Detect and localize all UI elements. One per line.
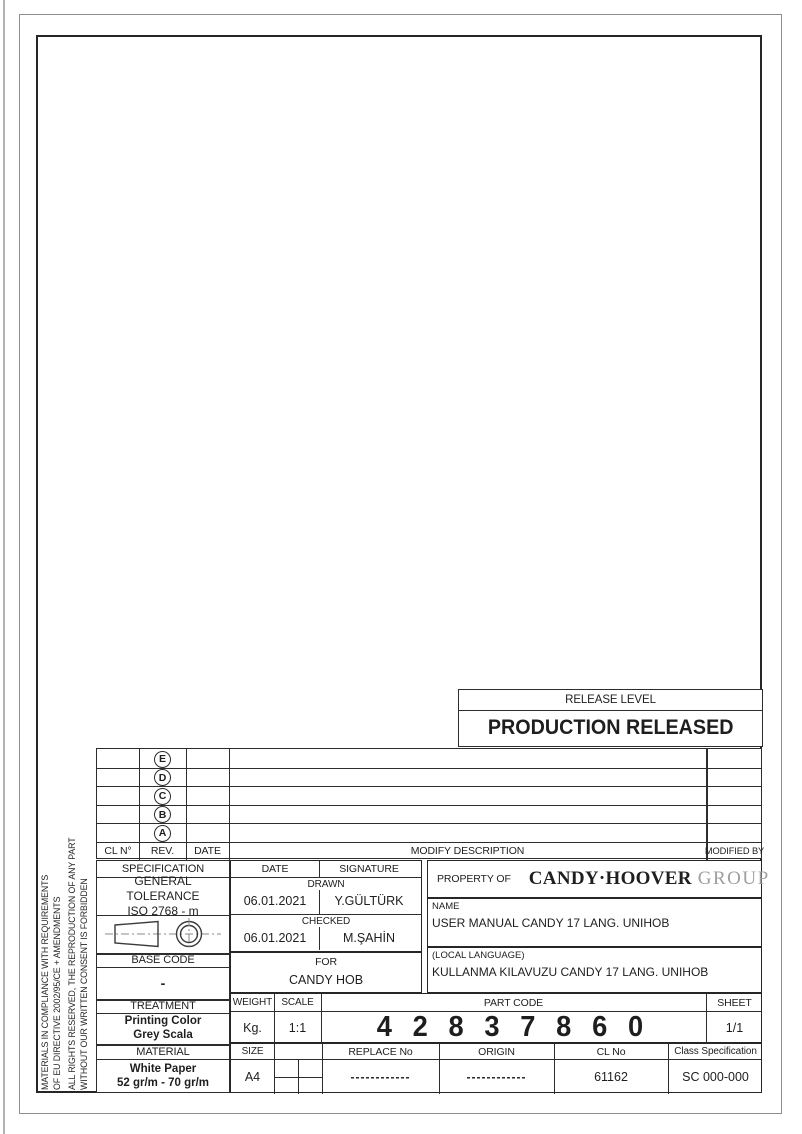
part-code-label: PART CODE <box>321 994 706 1011</box>
for-box: FOR CANDY HOB <box>230 952 422 993</box>
replace-no-label: REPLACE No <box>322 1044 439 1059</box>
treatment-line-1: Printing Color <box>125 1015 202 1029</box>
class-specification-value: SC 000-000 <box>668 1059 763 1094</box>
size-label: SIZE <box>231 1044 274 1059</box>
revision-table: E D C B A CL N° REV. DATE MODIFY DESCRIP… <box>96 748 762 859</box>
checked-date: 06.01.2021 <box>231 925 319 950</box>
for-label: FOR <box>231 955 421 968</box>
release-status: PRODUCTION RELEASED <box>459 710 762 747</box>
rev-mark-row: D <box>139 769 186 786</box>
divider-line <box>274 1077 322 1078</box>
page-edge-line <box>3 0 5 1134</box>
origin-value: ------------ <box>439 1059 554 1094</box>
for-value: CANDY HOB <box>231 968 421 991</box>
replace-no-dashes: ------------ <box>351 1070 411 1084</box>
general-tolerance-text: GENERAL TOLERANCE <box>97 874 229 904</box>
name-box: NAME USER MANUAL CANDY 17 LANG. UNIHOB <box>427 898 762 947</box>
release-level-label: RELEASE LEVEL <box>459 690 762 710</box>
material-value: White Paper 52 gr/m - 70 gr/m <box>97 1059 229 1094</box>
header-rev: REV. <box>139 842 186 861</box>
sheet-label: SHEET <box>706 994 763 1011</box>
local-language-label: (LOCAL LANGUAGE) <box>432 950 525 961</box>
date-header: DATE <box>231 861 319 877</box>
material-line-2: 52 gr/m - 70 gr/m <box>117 1077 209 1091</box>
drawing-sheet: RELEASE LEVEL PRODUCTION RELEASED E D C … <box>0 0 802 1134</box>
release-level-box: RELEASE LEVEL PRODUCTION RELEASED <box>458 689 763 747</box>
base-code-label: BASE CODE <box>97 953 229 967</box>
divider-line <box>97 786 761 787</box>
material-label: MATERIAL <box>97 1044 229 1059</box>
drawn-signature: Y.GÜLTÜRK <box>319 888 419 914</box>
rev-mark-b: B <box>154 806 171 823</box>
checked-signature: M.ŞAHİN <box>319 925 419 950</box>
projection-symbol-cell <box>97 915 229 953</box>
header-date: DATE <box>186 842 229 861</box>
weight-label: WEIGHT <box>231 994 274 1011</box>
compliance-line-4: WITHOUT OUR WRITTEN CONSENT IS FORBIDDEN <box>79 808 91 1090</box>
signoff-box: DATE SIGNATURE DRAWN 06.01.2021 Y.GÜLTÜR… <box>230 860 422 952</box>
rev-mark-c: C <box>154 788 171 805</box>
sheet-value: 1/1 <box>706 1011 763 1044</box>
scale-label: SCALE <box>274 994 321 1011</box>
header-cl-no: CL N° <box>97 842 139 861</box>
material-line-1: White Paper <box>130 1063 196 1077</box>
size-table: SIZE REPLACE No ORIGIN CL No Class Speci… <box>230 1043 762 1093</box>
spec-column: SPECIFICATION GENERAL TOLERANCE ISO 2768… <box>96 860 230 1093</box>
name-label: NAME <box>432 901 459 912</box>
divider-line <box>97 823 761 824</box>
divider-line <box>97 768 761 769</box>
weight-value: Kg. <box>231 1011 274 1044</box>
origin-dashes: ------------ <box>467 1070 527 1084</box>
part-code-table: WEIGHT SCALE PART CODE SHEET Kg. 1:1 4 2… <box>230 993 762 1043</box>
brand-suffix: GROUP <box>698 868 770 890</box>
treatment-value: Printing Color Grey Scala <box>97 1013 229 1044</box>
local-language-value: KULLANMA KILAVUZU CANDY 17 LANG. UNIHOB <box>432 965 708 979</box>
name-value: USER MANUAL CANDY 17 LANG. UNIHOB <box>432 916 669 930</box>
property-of-box: PROPERTY OF CANDY·HOOVER GROUP <box>427 860 762 898</box>
compliance-line-1: MATERIALS IN COMPLIANCE WITH REQUIREMENT… <box>40 808 52 1090</box>
cl-no-value: 61162 <box>554 1059 668 1094</box>
compliance-line-2: OF EU DIRECTIVE 2002/95/CE + AMENDMENTS <box>52 808 64 1090</box>
first-angle-projection-icon <box>103 916 223 952</box>
class-specification-label: Class Specification <box>668 1044 763 1059</box>
replace-no-value: ------------ <box>322 1059 439 1094</box>
origin-label: ORIGIN <box>439 1044 554 1059</box>
header-modify-description: MODIFY DESCRIPTION <box>229 842 706 861</box>
scale-value: 1:1 <box>274 1011 321 1044</box>
rev-mark-row: C <box>139 788 186 805</box>
treatment-label: TREATMENT <box>97 999 229 1013</box>
divider-line <box>274 1044 275 1094</box>
rev-mark-row: B <box>139 806 186 823</box>
signature-header: SIGNATURE <box>319 861 419 877</box>
compliance-line-3: ALL RIGHTS RESERVED, THE REPRODUCTION OF… <box>67 808 79 1090</box>
cl-no-label: CL No <box>554 1044 668 1059</box>
header-modified-by: MODIFIED BY <box>706 842 763 861</box>
local-language-box: (LOCAL LANGUAGE) KULLANMA KILAVUZU CANDY… <box>427 947 762 993</box>
treatment-line-2: Grey Scala <box>133 1029 192 1043</box>
base-code-value: - <box>97 967 229 999</box>
size-value: A4 <box>231 1059 274 1094</box>
divider-line <box>97 805 761 806</box>
rev-mark-a: A <box>154 825 171 842</box>
rev-mark-e: E <box>154 751 171 768</box>
rev-mark-row: A <box>139 825 186 842</box>
release-status-text: PRODUCTION RELEASED <box>488 716 734 740</box>
part-code-digits: 4 2 8 3 7 8 6 0 <box>377 1011 650 1044</box>
rev-mark-d: D <box>154 769 171 786</box>
property-of-label: PROPERTY OF <box>437 873 511 885</box>
brand-wordmark: CANDY·HOOVER <box>529 868 692 890</box>
rev-mark-row: E <box>139 751 186 768</box>
part-code-value: 4 2 8 3 7 8 6 0 <box>321 1011 706 1044</box>
drawn-date: 06.01.2021 <box>231 888 319 914</box>
general-tolerance-cell: GENERAL TOLERANCE ISO 2768 - m <box>97 877 229 915</box>
